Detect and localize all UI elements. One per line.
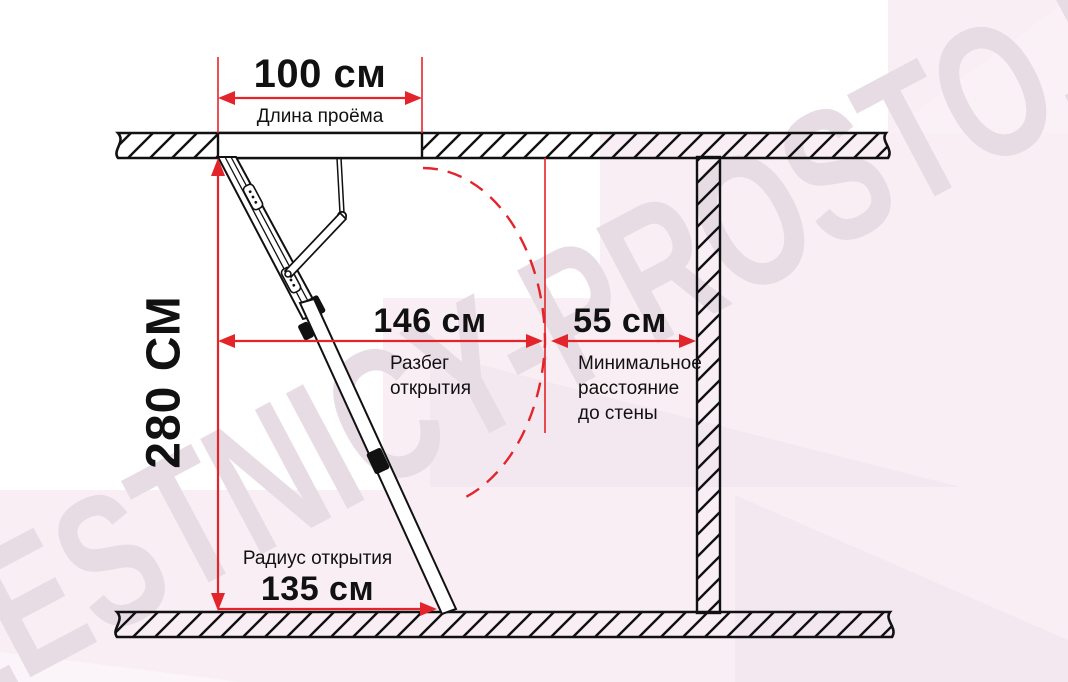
wall-clearance-caption: Минимальное расстояние до стены bbox=[578, 351, 728, 426]
floor-slab bbox=[115, 612, 893, 637]
span-caption-line2: открытия bbox=[390, 376, 530, 401]
opening-length-caption: Длина проёма bbox=[218, 104, 422, 129]
wall-clearance-value: 55 см bbox=[545, 304, 695, 338]
dim-height bbox=[211, 158, 225, 611]
support-strut bbox=[285, 158, 346, 277]
ceiling-slab bbox=[116, 133, 889, 158]
height-value: 280 СМ bbox=[137, 295, 192, 468]
radius-value: 135 см bbox=[230, 572, 405, 606]
radius-caption: Радиус открытия bbox=[230, 546, 405, 571]
attic-ladder-dimension-diagram: LESTNICY-PROSTO.RU bbox=[0, 0, 1068, 682]
wall-clearance-caption-line1: Минимальное bbox=[578, 351, 728, 376]
wall-clearance-caption-line3: до стены bbox=[578, 401, 728, 426]
span-value: 146 см bbox=[355, 304, 505, 338]
ceiling-opening bbox=[218, 133, 422, 158]
span-caption: Разбег открытия bbox=[390, 351, 530, 401]
span-caption-line1: Разбег bbox=[390, 351, 530, 376]
opening-length-value: 100 см bbox=[218, 54, 422, 94]
wall-clearance-caption-line2: расстояние bbox=[578, 376, 728, 401]
